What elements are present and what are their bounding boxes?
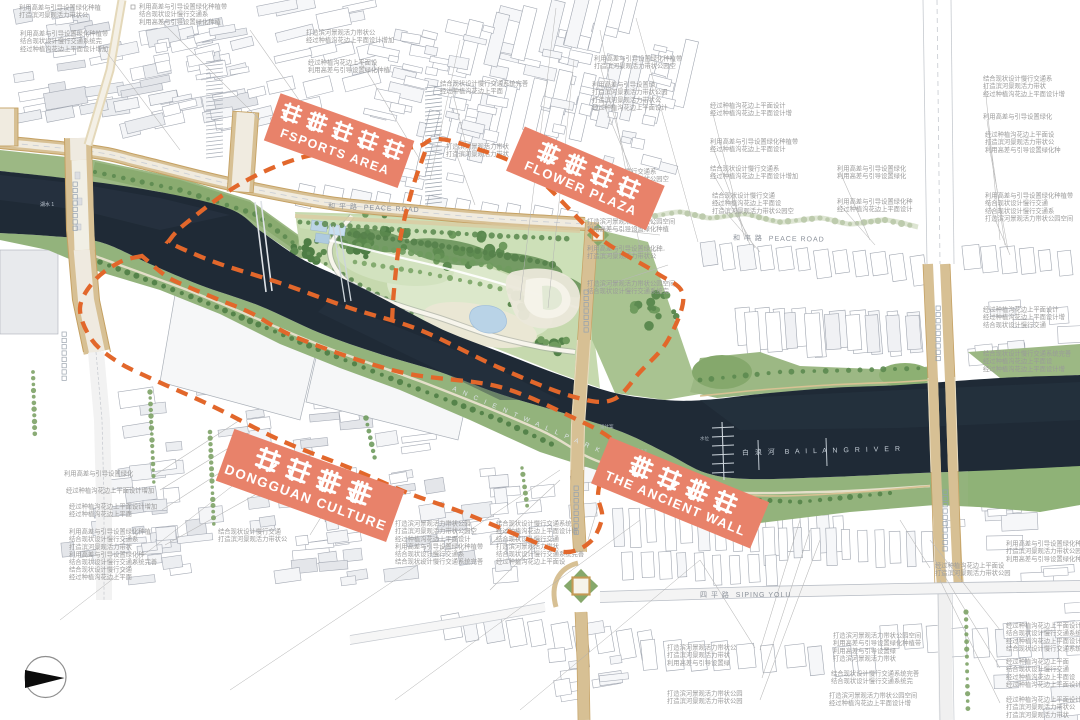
svg-text:经过种植沟花边上平面设计: 经过种植沟花边上平面设计 [983, 305, 1059, 314]
svg-text:经过种植沟花边上平面设: 经过种植沟花边上平面设 [308, 58, 378, 67]
svg-text:打造滨河景观活力带状公园空间: 打造滨河景观活力带状公园空间 [587, 279, 675, 288]
svg-text:结合现状设计慢行交通系统: 结合现状设计慢行交通系统 [1006, 643, 1080, 652]
svg-text:利用高差与引导设置绿化种植: 利用高差与引导设置绿化种植 [1006, 539, 1080, 548]
svg-text:打造滨河景观活力带状公园: 打造滨河景观活力带状公园 [1006, 546, 1080, 555]
svg-text:经过种植沟花边上平面设: 经过种植沟花边上平面设 [1006, 672, 1076, 681]
svg-text:结合现状设计慢行交通: 结合现状设计慢行交通 [712, 191, 776, 200]
svg-text:打造滨河景观活力带状公: 打造滨河景观活力带状公 [1006, 702, 1076, 711]
svg-text:结合现状设计慢行交通系统完善: 结合现状设计慢行交通系统完善 [440, 79, 528, 88]
svg-text:结合现状设计慢行交通系: 结合现状设计慢行交通系 [395, 549, 464, 558]
svg-text:打造滨河景观活力带状公园空间: 打造滨河景观活力带状公园空间 [833, 631, 921, 640]
svg-text:打造滨河景观活力带状: 打造滨河景观活力带状 [983, 81, 1047, 90]
svg-text:利用高差与引导设置绿: 利用高差与引导设置绿 [592, 80, 656, 89]
svg-text:利用高差与引导设置绿化种植带: 利用高差与引导设置绿化种植带 [139, 2, 227, 11]
svg-text:利用高差与引导设置绿化种植: 利用高差与引导设置绿化种植 [139, 17, 222, 26]
svg-text:结合现状设计慢行交通: 结合现状设计慢行交通 [985, 198, 1049, 207]
svg-text:利用高差与引导设置绿化种植: 利用高差与引导设置绿化种植 [308, 65, 391, 74]
svg-text:打造滨河景观活力带状: 打造滨河景观活力带状 [833, 653, 897, 662]
svg-text:经过种植沟花边上平面设计增加: 经过种植沟花边上平面设计增加 [66, 486, 154, 495]
svg-text:利用高差与引导设置绿化种植带: 利用高差与引导设置绿化种植带 [20, 29, 108, 38]
svg-text:经过种植沟花边上平面: 经过种植沟花边上平面 [69, 572, 132, 581]
svg-text:经过种植沟花边上平面设计增加: 经过种植沟花边上平面设计增加 [710, 171, 798, 180]
svg-text:利用高差与引导设置绿化: 利用高差与引导设置绿化 [837, 171, 907, 180]
svg-text:利用高差与引导设置绿化种植带: 利用高差与引导设置绿化种植带 [710, 137, 798, 146]
svg-text:结合现状设计慢行交通系统完善: 结合现状设计慢行交通系统完善 [395, 557, 483, 566]
svg-text:经过种植沟花边上平面设计增加: 经过种植沟花边上平面设计增加 [306, 35, 394, 44]
svg-text:结合现状设计慢行交通: 结合现状设计慢行交通 [983, 320, 1047, 329]
svg-text:打造滨河景观活力带状公: 打造滨河景观活力带状公 [218, 534, 288, 543]
svg-text:经过种植沟花边上平面设: 经过种植沟花边上平面设 [496, 557, 566, 566]
svg-text:利用高差与引导设置绿化种植: 利用高差与引导设置绿化种植 [587, 224, 670, 233]
svg-text:经过种植沟花边上平面设计增: 经过种植沟花边上平面设计增 [983, 89, 1065, 98]
svg-text:打造滨河景观活力带状公: 打造滨河景观活力带状公 [306, 28, 376, 37]
svg-text:打造滨河景观活力带状公园空: 打造滨河景观活力带状公园空 [395, 526, 477, 535]
svg-text:结合现状设计慢行交通系: 结合现状设计慢行交通系 [985, 206, 1054, 215]
svg-text:四 平 路 SIPING YOLU: 四 平 路 SIPING YOLU [700, 590, 791, 599]
svg-text:结合现状设计慢行交通系统完: 结合现状设计慢行交通系统完 [831, 676, 914, 685]
svg-text:经过种植沟花边上平面设计增加: 经过种植沟花边上平面设计增加 [1006, 636, 1080, 645]
svg-text:利用高差与引导设置绿化种植: 利用高差与引导设置绿化种植 [69, 527, 152, 536]
svg-text:利用高差与引导设置绿: 利用高差与引导设置绿 [833, 646, 897, 655]
svg-text:经过种植沟花边上平面设计增: 经过种植沟花边上平面设计增 [983, 364, 1065, 373]
svg-text:利用高差与引导设置绿化: 利用高差与引导设置绿化 [983, 112, 1053, 121]
svg-text:打造滨河景观活力带状公园空: 打造滨河景观活力带状公园空 [594, 61, 676, 70]
svg-text:打造滨河景观活力带状公园: 打造滨河景观活力带状公园 [395, 519, 471, 528]
svg-text:经过种植沟花边上平面设计增: 经过种植沟花边上平面设计增 [710, 108, 792, 117]
svg-text:经过种植沟花边上平面设: 经过种植沟花边上平面设 [985, 130, 1055, 139]
svg-text:湖水 1: 湖水 1 [40, 201, 54, 208]
svg-text:水位: 水位 [700, 435, 709, 441]
svg-text:结合现状设计慢行交通系: 结合现状设计慢行交通系 [69, 534, 138, 543]
svg-text:打造滨河景观活力带状公园: 打造滨河景观活力带状公园 [667, 689, 743, 698]
svg-text:利用高差与引导设置绿化种植带: 利用高差与引导设置绿化种植带 [1006, 554, 1080, 563]
svg-text:打造滨河景观活力带状公园: 打造滨河景观活力带状公园 [935, 568, 1011, 577]
svg-text:利用高差与引导设置绿化种植带: 利用高差与引导设置绿化种植带 [594, 54, 682, 63]
svg-text:打造滨河景观活力带状公: 打造滨河景观活力带状公 [985, 137, 1055, 146]
svg-text:经过种植沟花边上平面: 经过种植沟花边上平面 [1006, 657, 1069, 666]
svg-text:利用高差与引导设置绿化种植: 利用高差与引导设置绿化种植 [19, 3, 102, 12]
svg-text:结合现状设计慢行交通系: 结合现状设计慢行交通系 [139, 9, 208, 18]
svg-text:结合现状设计慢行交通系统: 结合现状设计慢行交通系统 [496, 519, 572, 528]
svg-text:利用高差与引导设置绿化种植带: 利用高差与引导设置绿化种植带 [985, 191, 1073, 200]
svg-text:经过种植沟花边上平面设: 经过种植沟花边上平面设 [935, 561, 1005, 570]
svg-text:经过种植沟花边上平面设: 经过种植沟花边上平面设 [712, 198, 782, 207]
svg-text:打造滨河景观活力带状公园: 打造滨河景观活力带状公园 [592, 87, 668, 96]
svg-text:结合现状设计慢行交通系统完善: 结合现状设计慢行交通系统完善 [831, 669, 919, 678]
svg-text:利用高差与引导设置绿化种: 利用高差与引导设置绿化种 [985, 145, 1061, 154]
svg-text:经过种植沟花边上平面: 经过种植沟花边上平面 [69, 509, 132, 518]
svg-text:打造滨河景观活力带状公: 打造滨河景观活力带状公 [19, 10, 89, 19]
svg-text:经过种植沟花边上平面设计增: 经过种植沟花边上平面设计增 [983, 312, 1065, 321]
svg-text:利用高差与引导设置绿: 利用高差与引导设置绿 [667, 658, 731, 667]
svg-text:经过种植沟花边上平面设计增加: 经过种植沟花边上平面设计增加 [1006, 695, 1080, 704]
svg-text:设计案: 设计案 [600, 423, 614, 430]
svg-text:利用高差与引导设置绿化种植带: 利用高差与引导设置绿化种植带 [833, 638, 921, 647]
svg-text:结合现状设计慢行交通系: 结合现状设计慢行交通系 [983, 74, 1052, 83]
svg-text:结合现状设计慢行交通系统完: 结合现状设计慢行交通系统完 [587, 286, 670, 295]
svg-text:结合现状设计慢行交通系统完善: 结合现状设计慢行交通系统完善 [983, 349, 1071, 358]
svg-text:经过种植沟花边上平面设计增加: 经过种植沟花边上平面设计增加 [69, 502, 157, 511]
svg-text:打造滨河景观活力带状公园空间: 打造滨河景观活力带状公园空间 [829, 691, 917, 700]
svg-text:经过种植沟花边上平面设计: 经过种植沟花边上平面设计 [837, 204, 913, 213]
svg-text:结合现状设计慢行交通: 结合现状设计慢行交通 [218, 527, 282, 536]
svg-text:打造滨河景观活力带状公园空间: 打造滨河景观活力带状公园空间 [985, 213, 1073, 222]
svg-text:结合现状设计慢行交通: 结合现状设计慢行交通 [1006, 664, 1070, 673]
svg-text:经过种植沟花边上平面: 经过种植沟花边上平面 [440, 86, 503, 95]
svg-text:结合现状设计慢行交通系统完善: 结合现状设计慢行交通系统完善 [1006, 628, 1080, 637]
svg-text:经过种植沟花边上平面设计增: 经过种植沟花边上平面设计增 [829, 698, 911, 707]
svg-text:打造滨河景观活力带状: 打造滨河景观活力带状 [1006, 710, 1070, 719]
svg-text:利用高差与引导设置绿化: 利用高差与引导设置绿化 [837, 164, 907, 173]
svg-text:经过种植沟花边上平面设计: 经过种植沟花边上平面设计 [710, 101, 786, 110]
svg-text:打造滨河景观活力带状公: 打造滨河景观活力带状公 [592, 95, 662, 104]
svg-text:结合现状设计慢行交通: 结合现状设计慢行交通 [69, 565, 133, 574]
svg-text:结合现状设计慢行交通系统完: 结合现状设计慢行交通系统完 [20, 36, 103, 45]
svg-text:结合现状设计慢行交通系: 结合现状设计慢行交通系 [710, 164, 779, 173]
svg-text:打造滨河景观活力带状: 打造滨河景观活力带状 [667, 650, 731, 659]
svg-text:打造滨河景观活力带状公园空: 打造滨河景观活力带状公园空 [712, 206, 794, 215]
svg-text:利用高差与引导设置绿化种: 利用高差与引导设置绿化种 [837, 197, 913, 206]
svg-text:利用高差与引导设置绿化种植带: 利用高差与引导设置绿化种植带 [395, 541, 483, 550]
svg-text:利用高差与引导设置绿化种: 利用高差与引导设置绿化种 [587, 244, 663, 253]
svg-text:打造滨河景观活力带状公园: 打造滨河景观活力带状公园 [667, 696, 743, 705]
svg-text:经过种植沟花边上平面设计增加: 经过种植沟花边上平面设计增加 [1006, 621, 1080, 630]
svg-text:利用高差与引导设置绿化: 利用高差与引导设置绿化 [64, 469, 134, 478]
svg-text:打造滨河景观活力带状公: 打造滨河景观活力带状公 [667, 643, 737, 652]
svg-text:经过种植沟花边上平面设计: 经过种植沟花边上平面设计 [395, 534, 471, 543]
svg-text:经过种植沟花边上平面设计: 经过种植沟花边上平面设计 [710, 144, 786, 153]
svg-text:打造滨河景观活力带状: 打造滨河景观活力带状 [69, 542, 133, 551]
svg-text:经过种植沟花边上平面设计增加: 经过种植沟花边上平面设计增加 [1006, 679, 1080, 688]
svg-text:经过种植沟花边上平面设: 经过种植沟花边上平面设 [983, 356, 1053, 365]
svg-text:结合现状设计慢行交通系统完善: 结合现状设计慢行交通系统完善 [69, 557, 157, 566]
svg-text:经过种植沟花边上平面设计: 经过种植沟花边上平面设计 [592, 102, 668, 111]
svg-text:利用高差与引导设置绿化种: 利用高差与引导设置绿化种 [69, 549, 145, 558]
svg-text:经过种植沟花边上平面设计增加: 经过种植沟花边上平面设计增加 [20, 44, 108, 53]
